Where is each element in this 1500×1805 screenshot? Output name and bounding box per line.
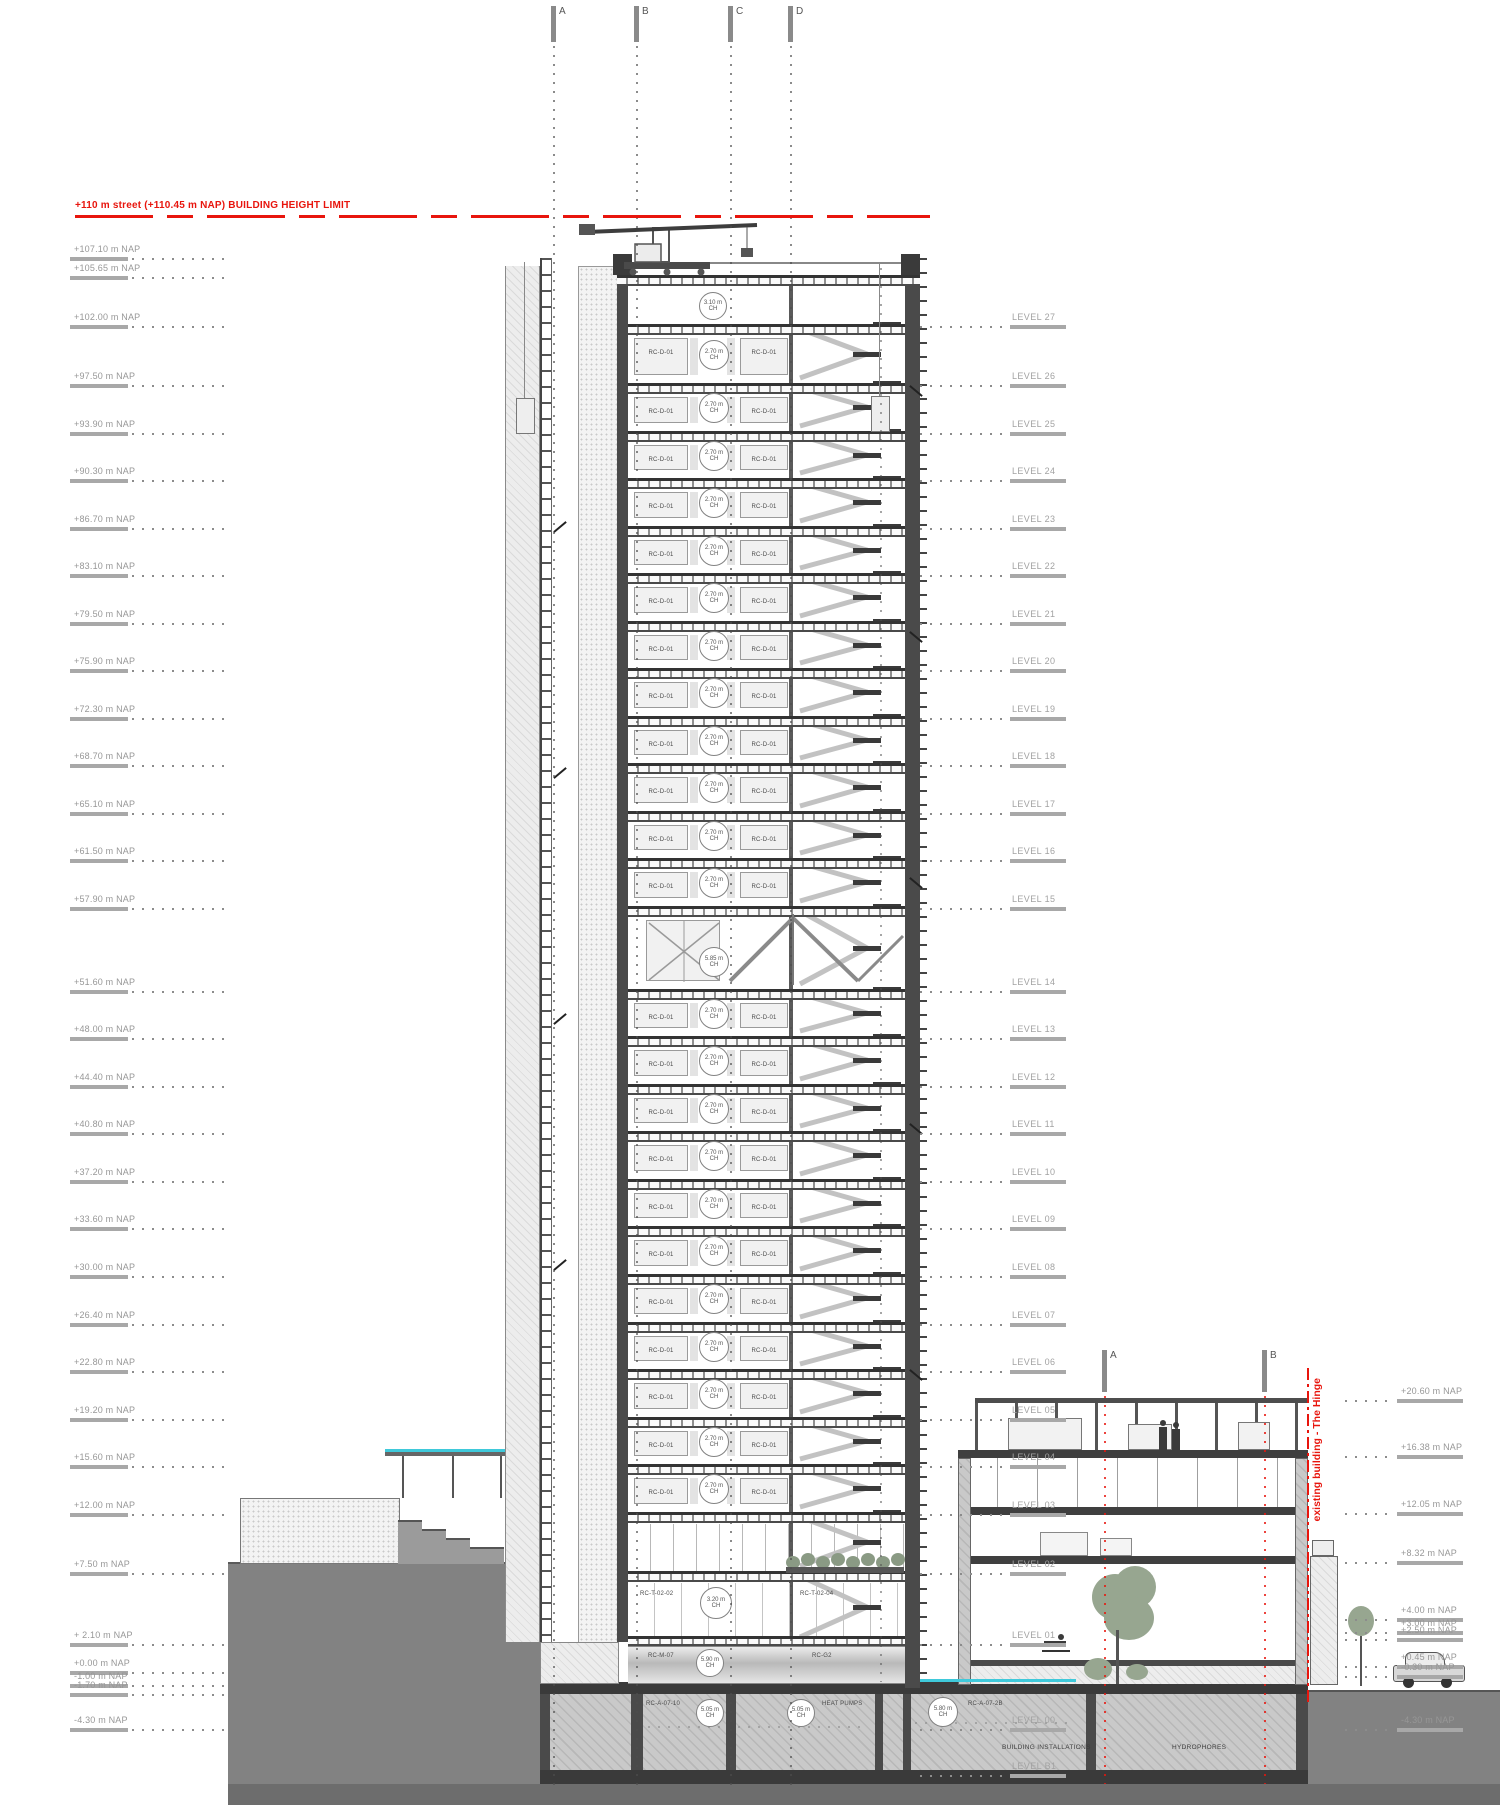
level-label: LEVEL 02 (1012, 1559, 1055, 1569)
level-dotted-line (920, 1133, 1008, 1135)
level-label: LEVEL 23 (1012, 514, 1055, 524)
elevation-dotted-line (132, 1324, 228, 1326)
shading-strip (690, 1050, 698, 1076)
hinge-boundary-line (1307, 1368, 1309, 1702)
unit-label: RC-D-01 (648, 350, 673, 356)
level-label: LEVEL 00 (1012, 1715, 1055, 1725)
level-label: LEVEL 21 (1012, 609, 1055, 619)
level-label: LEVEL 24 (1012, 466, 1055, 476)
elevation-dotted-line (132, 1729, 228, 1731)
building-installations-label: BUILDING INSTALLATIONS (1002, 1744, 1091, 1751)
level-dotted-line (920, 1775, 1008, 1777)
elevation-dotted-line (132, 765, 228, 767)
elevation-dotted-line (132, 1133, 228, 1135)
canopy-column (402, 1456, 404, 1498)
basement-wall (1296, 1694, 1308, 1770)
grid-tag-d (788, 6, 793, 42)
shading-strip (690, 587, 698, 613)
ceiling-height-badge: 2.70 mCH (699, 536, 729, 566)
unit-label: RC-D-01 (751, 599, 776, 605)
unit-panel: RC-D-01 (740, 1431, 788, 1456)
elevation-label: +0.00 m NAP (74, 1658, 130, 1668)
level-bar (1010, 1370, 1066, 1374)
level-label: LEVEL 09 (1012, 1214, 1055, 1224)
tower-left-facade-strip (505, 266, 540, 1642)
ceiling-height-badge-suffix: CH (710, 1394, 719, 1401)
elevation-bar (70, 384, 128, 388)
unit-panel: RC-D-01 (740, 872, 788, 898)
unit-label: RC-D-01 (751, 1157, 776, 1163)
unit-panel: RC-D-01 (740, 338, 788, 375)
hinge-label: existing building - The Hinge (1311, 1378, 1323, 1522)
elevation-label: +75.90 m NAP (74, 656, 135, 666)
floor-slab (628, 1131, 905, 1142)
unit-label: RC-D-01 (751, 647, 776, 653)
level-marker: LEVEL 04 (920, 1452, 1080, 1470)
unit-label: RC-D-01 (751, 1062, 776, 1068)
elevation-bar (70, 1572, 128, 1576)
level-bar (1010, 1180, 1066, 1184)
unit-panel: RC-D-01 (740, 1383, 788, 1409)
grid-letter: B (1270, 1350, 1277, 1361)
unit-panel: RC-D-01 (634, 540, 688, 565)
elevation-dotted-line (132, 385, 228, 387)
unit-label: RC-D-01 (648, 1157, 673, 1163)
floor-slab (628, 1464, 905, 1475)
level-dotted-line (920, 813, 1008, 815)
level-bar (1010, 1132, 1066, 1136)
level-marker: LEVEL 26 (920, 371, 1080, 389)
unit-panel: RC-D-01 (634, 777, 688, 803)
ceiling-height-badge: 2.70 mCH (699, 1189, 729, 1219)
floor-slab (628, 324, 905, 335)
level-marker: LEVEL 22 (920, 561, 1080, 579)
unit-label: RC-D-01 (648, 1252, 673, 1258)
unit-panel: RC-D-01 (740, 1336, 788, 1361)
level-marker: LEVEL 13 (920, 1024, 1080, 1042)
ceiling-height-badge: 2.70 mCH (699, 999, 729, 1029)
unit-panel: RC-D-01 (634, 1050, 688, 1076)
elevation-bar (70, 1465, 128, 1469)
elevation-marker: +7.50 m NAP (70, 1559, 310, 1577)
unit-panel: RC-D-01 (634, 1431, 688, 1456)
ceiling-height-badge: 2.70 mCH (699, 393, 729, 423)
unit-panel: RC-D-01 (634, 730, 688, 755)
grid-tag-a (551, 6, 556, 42)
person-figure (1158, 1420, 1188, 1452)
right-elevation-marker: +12.05 m NAP (1345, 1499, 1495, 1517)
elevation-bar (70, 1085, 128, 1089)
ceiling-height-badge-suffix: CH (710, 1109, 719, 1116)
level-bar (1010, 574, 1066, 578)
level-dotted-line (920, 765, 1008, 767)
level-marker: LEVEL 00 (920, 1715, 1080, 1733)
level-dotted-line (920, 1276, 1008, 1278)
elevation-label: +61.50 m NAP (74, 846, 135, 856)
unit-panel: RC-D-01 (634, 635, 688, 660)
shading-strip (690, 445, 698, 470)
right-elevation-marker: +16.38 m NAP (1345, 1442, 1495, 1460)
level-bar (1010, 622, 1066, 626)
plaza-step (446, 1538, 470, 1564)
floor-slab (628, 1417, 905, 1428)
level-bar (1010, 479, 1066, 483)
unit-panel: RC-D-01 (634, 397, 688, 423)
basement-wall (540, 1694, 550, 1770)
unit-label: RC-D-01 (751, 409, 776, 415)
floor-slab (628, 858, 905, 869)
unit-label: RC-D-01 (648, 1348, 673, 1354)
unit-panel: RC-D-01 (740, 1050, 788, 1076)
elevation-label: +97.50 m NAP (74, 371, 135, 381)
unit-label: RC-D-01 (751, 552, 776, 558)
floor-slab (628, 621, 905, 632)
level-dotted-line (920, 326, 1008, 328)
ceiling-height-badge-suffix: CH (710, 1489, 719, 1496)
shading-strip (690, 682, 698, 708)
elevation-bar (70, 1037, 128, 1041)
level-dotted-line (920, 1729, 1008, 1731)
right-elevation-dotted-line (1345, 1456, 1395, 1458)
right-elevation-dotted-line (1345, 1729, 1395, 1731)
unit-panel: RC-D-01 (740, 540, 788, 565)
cradle-cable (524, 262, 525, 398)
level-marker: LEVEL 24 (920, 466, 1080, 484)
ceiling-height-badge-suffix: CH (710, 741, 719, 748)
elevation-label: +79.50 m NAP (74, 609, 135, 619)
elevation-marker: -4.30 m NAP (70, 1715, 310, 1733)
unit-panel: RC-D-01 (740, 1003, 788, 1028)
unit-label: RC-D-01 (648, 409, 673, 415)
level-dotted-line (920, 433, 1008, 435)
level-label: LEVEL 04 (1012, 1452, 1055, 1462)
lobby-label-right: RC-T-02-04 (800, 1591, 833, 1597)
elevation-label: +105.65 m NAP (74, 263, 140, 273)
section-drawing: RC-A-07-10 HEAT PUMPS RC-A-07-2B BUILDIN… (0, 0, 1500, 1805)
elevation-marker: +40.80 m NAP (70, 1119, 310, 1137)
level-label: LEVEL 15 (1012, 894, 1055, 904)
mezzanine-label-left: RC-M-07 (648, 1653, 674, 1659)
right-elevation-bar (1397, 1728, 1463, 1732)
ceiling-height-badge: 2.70 mCH (699, 1474, 729, 1504)
elevation-bar (70, 1275, 128, 1279)
floor-slab (628, 1226, 905, 1237)
elevation-dotted-line (132, 1514, 228, 1516)
elevation-bar (70, 257, 128, 261)
tower-balcony-strip (578, 266, 619, 1644)
level-dotted-line (920, 1573, 1008, 1575)
unit-label: RC-D-01 (751, 884, 776, 890)
grid-letter: A (559, 6, 566, 17)
unit-label: RC-D-01 (648, 457, 673, 463)
grid-letter: B (642, 6, 649, 17)
tall-ceiling-height-badge-suffix: CH (710, 962, 719, 969)
level-dotted-line (920, 1038, 1008, 1040)
right-elevation-marker: +2.50 m NAP (1345, 1625, 1495, 1643)
ceiling-height-badge-suffix: CH (710, 693, 719, 700)
unit-panel: RC-D-01 (740, 1098, 788, 1123)
elevation-bar (70, 1418, 128, 1422)
grid-letter: C (736, 6, 743, 17)
level-label: LEVEL 27 (1012, 312, 1055, 322)
tower-left-facade-line (540, 258, 552, 1642)
ceiling-height-badge: 2.70 mCH (699, 488, 729, 518)
elevation-dotted-line (132, 860, 228, 862)
right-elevation-bar (1397, 1455, 1463, 1459)
ceiling-height-badge-suffix: CH (710, 355, 719, 362)
ceiling-height-badge-suffix: CH (710, 551, 719, 558)
basement-wall (1086, 1694, 1096, 1770)
shading-strip (690, 777, 698, 803)
ceiling-height-badge-suffix: CH (710, 646, 719, 653)
unit-label: RC-D-01 (751, 457, 776, 463)
planter-box (786, 1567, 904, 1573)
mezzanine-ceiling-height-badge-suffix: CH (706, 1663, 715, 1670)
level-marker: LEVEL 27 (920, 312, 1080, 330)
elevation-marker: +102.00 m NAP (70, 312, 310, 330)
grid-line-right-b (1264, 1396, 1266, 1784)
floor-slab (628, 478, 905, 489)
elevation-dotted-line (132, 1181, 228, 1183)
shading-strip (690, 1431, 698, 1456)
elevation-dotted-line (132, 1276, 228, 1278)
level-label: LEVEL 07 (1012, 1310, 1055, 1320)
level-bar (1010, 907, 1066, 911)
unit-panel: RC-D-01 (740, 1478, 788, 1504)
elevation-label: +83.10 m NAP (74, 561, 135, 571)
elevation-marker: +51.60 m NAP (70, 977, 310, 995)
elevation-label: +15.60 m NAP (74, 1452, 135, 1462)
elevation-bar (70, 907, 128, 911)
elevation-label: + 2.10 m NAP (74, 1630, 133, 1640)
unit-label: RC-D-01 (648, 1490, 673, 1496)
basement-wall (875, 1694, 883, 1770)
elevation-bar (70, 859, 128, 863)
floor-slab (628, 1512, 905, 1523)
elevation-marker: +97.50 m NAP (70, 371, 310, 389)
shading-strip (690, 730, 698, 755)
level-marker: LEVEL 08 (920, 1262, 1080, 1280)
level-dotted-line (920, 1228, 1008, 1230)
grid-line-d (790, 46, 792, 1788)
tower-left-wall (617, 256, 628, 1642)
ceiling-height-badge: 2.70 mCH (699, 1094, 729, 1124)
right-elevation-label: +0.45 m NAP (1401, 1652, 1457, 1662)
basement-room-label: HEAT PUMPS (822, 1701, 862, 1707)
roof-ceiling-height-badge: 3.10 mCH (699, 292, 727, 320)
unit-label: RC-D-01 (648, 1062, 673, 1068)
right-elevation-label: +12.05 m NAP (1401, 1499, 1462, 1509)
level-bar (1010, 1275, 1066, 1279)
elevation-marker: +57.90 m NAP (70, 894, 310, 912)
elevation-bar (70, 1693, 128, 1697)
level-marker: LEVEL 03 (920, 1500, 1080, 1518)
elevation-dotted-line (132, 1419, 228, 1421)
level-marker: LEVEL 23 (920, 514, 1080, 532)
elevation-dotted-line (132, 991, 228, 993)
shading-strip (690, 397, 698, 423)
unit-label: RC-D-01 (751, 1015, 776, 1021)
level-label: LEVEL 16 (1012, 846, 1055, 856)
elevation-label: +19.20 m NAP (74, 1405, 135, 1415)
ceiling-height-badge: 2.70 mCH (699, 821, 729, 851)
right-elevation-label: +16.38 m NAP (1401, 1442, 1462, 1452)
unit-panel: RC-D-01 (634, 1478, 688, 1504)
right-elevation-label: +2.50 m NAP (1401, 1625, 1457, 1635)
elevation-dotted-line (132, 908, 228, 910)
planter-greenery (831, 1553, 845, 1566)
elevation-marker: +90.30 m NAP (70, 466, 310, 484)
tree (1082, 1566, 1162, 1686)
ceiling-height-badge: 2.70 mCH (699, 1141, 729, 1171)
ceiling-height-badge-suffix: CH (710, 1442, 719, 1449)
stair-centerline-dotted (880, 268, 882, 1682)
right-elevation-marker: -0.30 m NAP (1345, 1662, 1495, 1680)
elevation-marker: -1.70 m NAP (70, 1680, 310, 1698)
level-dotted-line (920, 1181, 1008, 1183)
level-bar (1010, 1572, 1066, 1576)
basement-wall (903, 1694, 911, 1770)
unit-label: RC-D-01 (751, 1395, 776, 1401)
window-washing-cradle (516, 398, 535, 434)
waterproofing-line-right (920, 1679, 1076, 1682)
elevation-marker: +105.65 m NAP (70, 263, 310, 281)
right-elevation-marker: +20.60 m NAP (1345, 1386, 1495, 1404)
unit-label: RC-D-01 (648, 1015, 673, 1021)
grid-tag-right-b (1262, 1350, 1267, 1392)
level-label: LEVEL 01 (1012, 1630, 1055, 1640)
elevation-marker: +44.40 m NAP (70, 1072, 310, 1090)
level-label: LEVEL 12 (1012, 1072, 1055, 1082)
level-bar (1010, 1037, 1066, 1041)
elevation-marker: +79.50 m NAP (70, 609, 310, 627)
right-elevation-bar (1397, 1675, 1463, 1679)
elevation-bar (70, 1132, 128, 1136)
unit-label: RC-D-01 (751, 1300, 776, 1306)
elevation-label: +68.70 m NAP (74, 751, 135, 761)
elevation-marker: +33.60 m NAP (70, 1214, 310, 1232)
unit-label: RC-D-01 (751, 1443, 776, 1449)
level-bar (1010, 1418, 1066, 1422)
basement-room-label: RC-A-07-2B (968, 1701, 1003, 1707)
level-label: LEVEL 05 (1012, 1405, 1055, 1415)
unit-panel: RC-D-01 (634, 1336, 688, 1361)
level-dotted-line (920, 1086, 1008, 1088)
basement-ceiling-height-badge-suffix: CH (797, 1713, 806, 1720)
level-bar (1010, 1643, 1066, 1647)
elevation-marker: +37.20 m NAP (70, 1167, 310, 1185)
canopy-column (500, 1456, 502, 1498)
level-marker: LEVEL 16 (920, 846, 1080, 864)
unit-label: RC-D-01 (751, 1252, 776, 1258)
unit-label: RC-D-01 (648, 742, 673, 748)
rb-furniture-box (1040, 1532, 1088, 1556)
level-marker: LEVEL 05 (920, 1405, 1080, 1423)
right-elevation-marker: -4.30 m NAP (1345, 1715, 1495, 1733)
shading-strip (690, 1336, 698, 1361)
elevation-label: +12.00 m NAP (74, 1500, 135, 1510)
right-elevation-label: +8.32 m NAP (1401, 1548, 1457, 1558)
right-elevation-dotted-line (1345, 1639, 1395, 1641)
tower-parapet-right (901, 254, 920, 275)
grid-letter: A (1110, 1350, 1117, 1361)
unit-panel: RC-D-01 (740, 397, 788, 423)
unit-panel: RC-D-01 (740, 587, 788, 613)
unit-label: RC-D-01 (751, 837, 776, 843)
elevation-dotted-line (132, 623, 228, 625)
level-marker: LEVEL 15 (920, 894, 1080, 912)
unit-panel: RC-D-01 (740, 1145, 788, 1171)
unit-label: RC-D-01 (648, 1300, 673, 1306)
level-bar (1010, 1513, 1066, 1517)
ceiling-height-badge-suffix: CH (710, 1347, 719, 1354)
right-elevation-bar (1397, 1512, 1463, 1516)
elevation-bar (70, 574, 128, 578)
level-dotted-line (920, 670, 1008, 672)
ceiling-height-badge-suffix: CH (710, 598, 719, 605)
elevation-dotted-line (132, 718, 228, 720)
roof-ceiling-height-badge-suffix: CH (709, 306, 718, 313)
level-marker: LEVEL 11 (920, 1119, 1080, 1137)
elevation-bar (70, 990, 128, 994)
unit-label: RC-D-01 (648, 552, 673, 558)
elevation-marker: +48.00 m NAP (70, 1024, 310, 1042)
ceiling-height-badge: 2.70 mCH (699, 1284, 729, 1314)
elevation-label: +37.20 m NAP (74, 1167, 135, 1177)
unit-panel: RC-D-01 (740, 682, 788, 708)
unit-panel: RC-D-01 (740, 635, 788, 660)
elevation-bar (70, 812, 128, 816)
right-elevation-label: -4.30 m NAP (1401, 1715, 1455, 1725)
unit-label: RC-D-01 (648, 694, 673, 700)
elevation-bar (70, 1227, 128, 1231)
level-bar (1010, 527, 1066, 531)
basement-room-label: RC-A-07-10 (646, 1701, 680, 1707)
elevation-bar (70, 1513, 128, 1517)
unit-panel: RC-D-01 (634, 872, 688, 898)
elevation-dotted-line (132, 670, 228, 672)
ground-bottom-strip (228, 1784, 1500, 1805)
tower-right-wall (905, 256, 920, 1688)
unit-label: RC-D-01 (648, 789, 673, 795)
ceiling-height-badge-suffix: CH (710, 1061, 719, 1068)
floor-slab (628, 1274, 905, 1285)
unit-label: RC-D-01 (648, 1443, 673, 1449)
height-limit-line (75, 215, 930, 218)
elevation-dotted-line (132, 575, 228, 577)
ceiling-height-badge-suffix: CH (710, 1014, 719, 1021)
right-elevation-label: +4.00 m NAP (1401, 1605, 1457, 1615)
elevation-label: +40.80 m NAP (74, 1119, 135, 1129)
level-bar (1010, 990, 1066, 994)
basement-ceiling-height-badge: 5.05 mCH (696, 1699, 724, 1727)
shading-strip (690, 1240, 698, 1266)
floor-slab (628, 1369, 905, 1380)
elevation-dotted-line (132, 813, 228, 815)
elevation-bar (70, 432, 128, 436)
elevation-marker: +72.30 m NAP (70, 704, 310, 722)
elevation-marker: +61.50 m NAP (70, 846, 310, 864)
unit-panel: RC-D-01 (634, 825, 688, 850)
unit-label: RC-D-01 (648, 837, 673, 843)
unit-panel: RC-D-01 (634, 492, 688, 518)
shading-strip (690, 1288, 698, 1314)
level-bar (1010, 1465, 1066, 1469)
unit-panel: RC-D-01 (634, 587, 688, 613)
elevation-label: +86.70 m NAP (74, 514, 135, 524)
lobby-label-left: RC-T-02-02 (640, 1591, 673, 1597)
ceiling-height-badge: 2.70 mCH (699, 441, 729, 471)
